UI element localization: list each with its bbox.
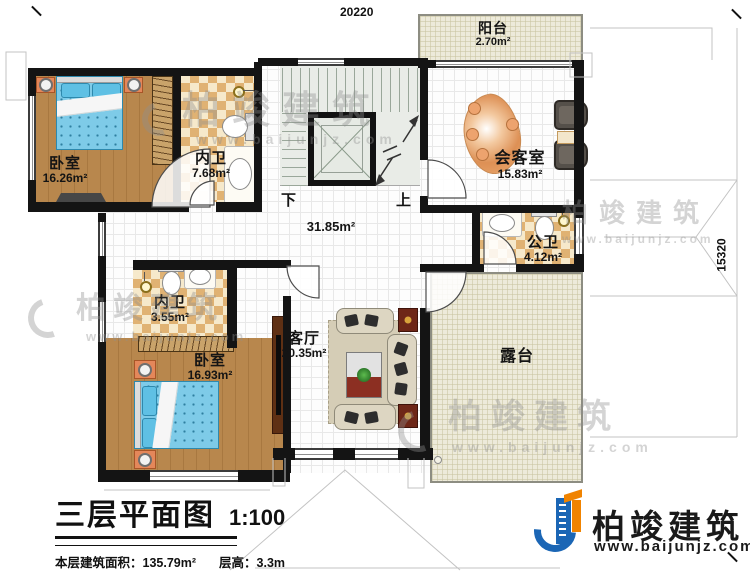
stool — [468, 102, 481, 115]
wall — [516, 264, 584, 272]
drain-icon — [434, 456, 442, 464]
window — [355, 448, 398, 460]
sofa-cushion — [393, 341, 408, 356]
wall — [28, 68, 262, 76]
bay-window-sill — [56, 193, 106, 202]
exterior-mask-top2 — [262, 40, 418, 58]
watermark-url: www.baijunjz.com — [452, 440, 653, 454]
wall — [420, 60, 428, 160]
logo-building-blue-icon — [556, 498, 571, 544]
plant-icon — [357, 368, 371, 382]
pillow — [142, 386, 157, 416]
dimension-top-width: 20220 — [340, 5, 373, 19]
stairs-direction: 下 — [279, 192, 299, 209]
room-label-bedroom2: 卧室 16.93m² — [172, 352, 248, 383]
room-name: 卧室 — [20, 155, 110, 172]
dimension-tick — [731, 9, 742, 20]
bed-headboard — [135, 382, 141, 448]
logo-building-windows — [559, 502, 566, 540]
nightstand — [134, 450, 156, 469]
lamp-icon — [138, 363, 152, 377]
sofa-right — [387, 334, 417, 406]
room-area: 31.85m² — [295, 220, 367, 235]
room-label-bedroom1: 卧室 16.26m² — [20, 155, 110, 186]
sofa-top — [336, 308, 394, 334]
sofa-cushion — [394, 382, 408, 396]
wall — [420, 264, 484, 272]
corner-table — [398, 308, 418, 332]
floor-height-label: 层高： — [219, 556, 257, 570]
logo-building-orange-icon — [572, 500, 581, 532]
watermark-brand: 柏竣建筑 — [448, 400, 620, 434]
window — [150, 470, 238, 482]
window — [98, 222, 106, 256]
brand-website: www.baijunjz.com — [594, 538, 750, 555]
sofa-cushion — [344, 411, 359, 425]
stairs-down-label: 下 — [279, 192, 299, 209]
wall — [181, 202, 189, 212]
wall — [216, 202, 262, 212]
lamp-icon — [138, 453, 152, 467]
title-block: 三层平面图 1:100 本层建筑面积：135.79m² 层高：3.3m — [55, 490, 315, 571]
nightstand — [134, 360, 156, 379]
pillow — [61, 83, 90, 98]
stool — [466, 128, 479, 141]
window — [295, 448, 333, 460]
room-label-bathroom1: 内卫 7.68m² — [176, 150, 246, 181]
floor-area-value: 135.79m² — [143, 556, 197, 570]
plan-scale: 1:100 — [229, 505, 285, 531]
sink-icon — [189, 268, 211, 285]
sofa-cushion — [364, 411, 379, 424]
wall — [28, 202, 181, 212]
watermark-brand: 柏竣建筑 — [182, 92, 382, 130]
wall — [283, 296, 291, 473]
room-area: 20.35m² — [268, 347, 340, 361]
floor-plan-canvas: 卧室 16.26m² 内卫 7.68m² 31.85m² 下 上 阳台 2.70… — [0, 0, 750, 572]
plan-title: 三层平面图 — [55, 490, 215, 534]
wall — [173, 68, 181, 212]
window — [298, 58, 344, 66]
room-name: 会客室 — [482, 150, 558, 168]
watermark-url: www.baijunjz.com — [562, 233, 714, 245]
room-area: 7.68m² — [176, 167, 246, 181]
floor-area-label: 本层建筑面积： — [55, 556, 143, 570]
nightstand — [124, 77, 143, 93]
wall — [283, 260, 291, 268]
room-name: 内卫 — [176, 150, 246, 167]
sofa-cushion — [364, 314, 379, 327]
room-label-reception: 会客室 15.83m² — [482, 150, 558, 182]
wall — [472, 205, 480, 272]
floor-height-value: 3.3m — [257, 556, 286, 570]
bed-double — [134, 381, 219, 449]
wall — [273, 448, 295, 460]
lamp-icon — [39, 78, 53, 92]
sofa-cushion — [394, 362, 409, 377]
coffee-table — [346, 352, 382, 398]
nightstand — [36, 77, 55, 93]
room-label-balcony: 阳台 2.70m² — [455, 20, 531, 49]
wall — [133, 260, 235, 270]
room-name: 客厅 — [268, 330, 340, 347]
sink-icon — [489, 214, 515, 232]
room-name: 露台 — [488, 348, 546, 366]
room-label-terrace: 露台 — [488, 348, 546, 366]
brand-logo: 柏竣建筑 www.baijunjz.com — [534, 492, 744, 562]
room-area: 4.12m² — [508, 251, 578, 265]
title-underline — [55, 536, 237, 546]
watermark-url: www.baijunjz.com — [86, 330, 246, 343]
room-area: 2.70m² — [455, 36, 531, 49]
dimension-tick — [31, 6, 42, 17]
watermark-brand: 柏竣建筑 — [562, 200, 710, 226]
room-area: 16.93m² — [172, 369, 248, 383]
watermark-url: www.baijunjz.com — [196, 132, 397, 146]
stool — [506, 118, 519, 131]
window — [436, 60, 572, 68]
stairs-up-label: 上 — [394, 192, 414, 209]
bed-double — [56, 76, 123, 150]
room-area: 15.83m² — [482, 168, 558, 182]
wall — [420, 205, 576, 213]
lamp-icon — [127, 78, 141, 92]
wall — [227, 260, 291, 268]
room-label-hall-area: 31.85m² — [295, 220, 367, 235]
sofa-cushion — [344, 314, 359, 327]
room-name: 阳台 — [455, 20, 531, 36]
stairs-direction: 上 — [394, 192, 414, 209]
room-name: 卧室 — [172, 352, 248, 369]
exterior-mask-top1 — [28, 44, 262, 68]
lamp-stem — [144, 272, 145, 281]
room-label-living: 客厅 20.35m² — [268, 330, 340, 361]
wall — [333, 448, 355, 460]
room-area: 16.26m² — [20, 172, 110, 186]
sofa-bottom — [334, 404, 396, 430]
watermark-brand: 柏竣建筑 — [76, 294, 224, 324]
dimension-right-height: 15320 — [715, 238, 729, 271]
